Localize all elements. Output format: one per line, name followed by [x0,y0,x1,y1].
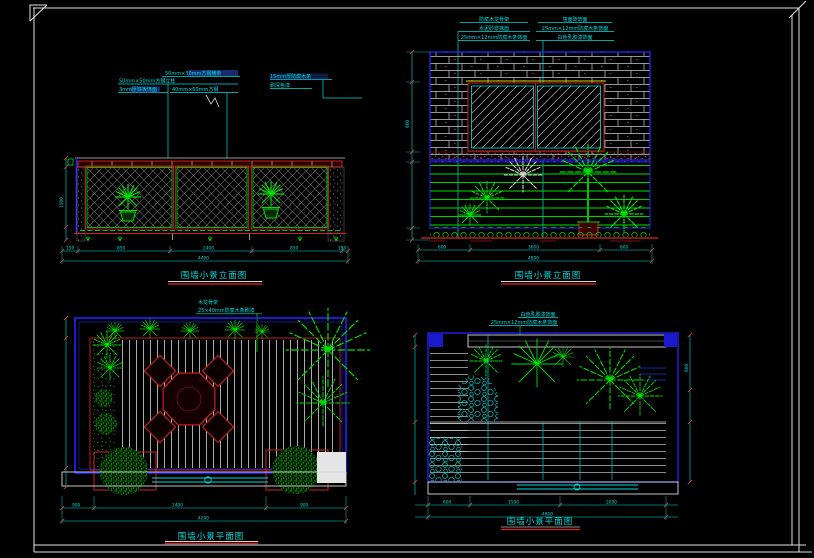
annotation-c1: 25×40mm防腐木条刷漆 [198,307,255,314]
annotation-a0: 50mm×30mm方钢横条 [165,70,221,77]
dim-label: 2000 [606,500,617,506]
view-title: 围墙小景平面图 [507,516,574,527]
dim-label: 600 [438,245,446,251]
view-title: 围墙小景平面图 [178,531,245,542]
annotation-r0: 15mm厚防腐木条 [270,73,311,80]
annotation-b-left-0: 防腐木龙骨架 [479,16,509,23]
dim-left-d [413,333,417,495]
bottom-slat-deck [430,422,666,478]
dim-left-b: 900 [405,50,430,242]
annotation-b-right-0: 墙面砖饰面 [562,16,587,23]
elevation-view-b: 防腐木龙骨架 水泥砂浆抹面 25mm×12mm防腐木条饰面 墙面砖饰面 25mm… [405,16,658,284]
pebble-cluster [429,437,462,481]
cad-drawing: 50mm×30mm方钢横条 50mm×50mm方钢立柱 3mm厚铁板饰面 40m… [0,0,814,558]
title-d: 围墙小景平面图 [501,516,580,530]
white-paving-block [317,452,346,483]
title-a: 围墙小景立面图 [168,270,262,284]
frame-corner-cut-topright [789,1,806,18]
pebble-row [430,227,650,237]
windows [468,83,604,151]
title-c: 围墙小景平面图 [165,531,258,544]
left-column [77,167,85,241]
dim-bottom-a: 150 850 2400 850 150 4400 [60,246,350,265]
dim-label: 600 [620,245,628,251]
shrub-ball [100,447,148,495]
grass-tufts [86,236,338,241]
elevation-view-a: 50mm×30mm方钢横条 50mm×50mm方钢立柱 3mm厚铁板饰面 40m… [59,70,362,284]
cad-canvas: 50mm×30mm方钢横条 50mm×50mm方钢立柱 3mm厚铁板饰面 40m… [0,0,814,558]
plan-view-d: 白色乳胶漆饰面 25mm×12mm防腐木条饰面 [413,311,692,530]
dim-label: 4400 [198,256,209,262]
dim-label: 900 [72,503,80,509]
dim-label: 2400 [172,503,183,509]
starburst-palm [512,339,563,387]
annotation-b-left-2: 25mm×12mm防腐木条饰面 [461,34,527,41]
shrub [95,389,113,407]
fern-large [577,347,643,410]
dim-left-a: 1500 [59,156,68,242]
section-marker [152,477,268,483]
pebble-cluster [458,375,498,421]
break-line-symbol [206,95,219,107]
dim-label: 4800 [528,256,539,262]
title-b: 围墙小景立面图 [501,270,596,284]
annotation-d1: 25mm×12mm防腐木条饰面 [491,319,557,326]
annotation-b-left-1: 水泥砂浆抹面 [479,25,509,32]
shrub [95,413,117,435]
dim-label: 150 [338,246,346,252]
shrub-ball [272,446,320,494]
red-speckle-band [430,152,650,162]
dim-bottom-c: 900 2400 900 4200 [60,496,348,524]
annotation-b-right-1: 25mm×12mm防腐木条饰面 [542,25,608,32]
dim-left-c [64,316,68,489]
dim-label: 2400 [203,246,214,252]
dim-label: 1500 [508,500,519,506]
section-marker [517,484,638,490]
right-column [328,167,344,241]
annotation-a2: 3mm厚铁板饰面 [119,86,157,93]
annotation-c0: 木龙骨架 [198,299,218,306]
view-title: 围墙小景立面图 [181,270,248,281]
dim-bottom-b: 600 3600 600 4800 [416,244,654,264]
annotation-d0: 白色乳胶漆饰面 [520,311,555,318]
dim-label: 600 [443,500,451,506]
annotation-b-right-2: 白色乳胶漆饰面 [557,34,592,41]
green-slat-fence [430,162,650,228]
annotation-a1: 50mm×50mm方钢立柱 [119,78,175,85]
octagon-table [163,373,215,425]
blue-block [664,334,677,347]
bench-strip [428,482,678,494]
dim-label: 900 [684,364,690,372]
plan-view-c: 木龙骨架 25×40mm防腐木条刷漆 [60,299,370,544]
frame-corner-cut-topleft [30,5,47,21]
rail-end-marker [68,159,73,165]
dim-label: 850 [117,246,125,252]
blue-block [429,334,443,347]
annotation-a3: 40mm×60mm方钢 [172,86,218,93]
dim-label: 1500 [59,197,65,208]
dim-label: 900 [300,503,308,509]
annotation-r1: 刷深色漆 [270,82,290,89]
dim-label: 900 [405,120,411,128]
dim-label: 4200 [198,516,209,522]
fern [470,345,503,377]
dim-right-d: 900 [684,333,692,484]
dim-label: 3600 [528,245,539,251]
view-title: 围墙小景立面图 [515,270,582,281]
dim-label: 150 [66,246,74,252]
dim-label: 850 [290,246,298,252]
blue-slat-lines [640,368,666,380]
